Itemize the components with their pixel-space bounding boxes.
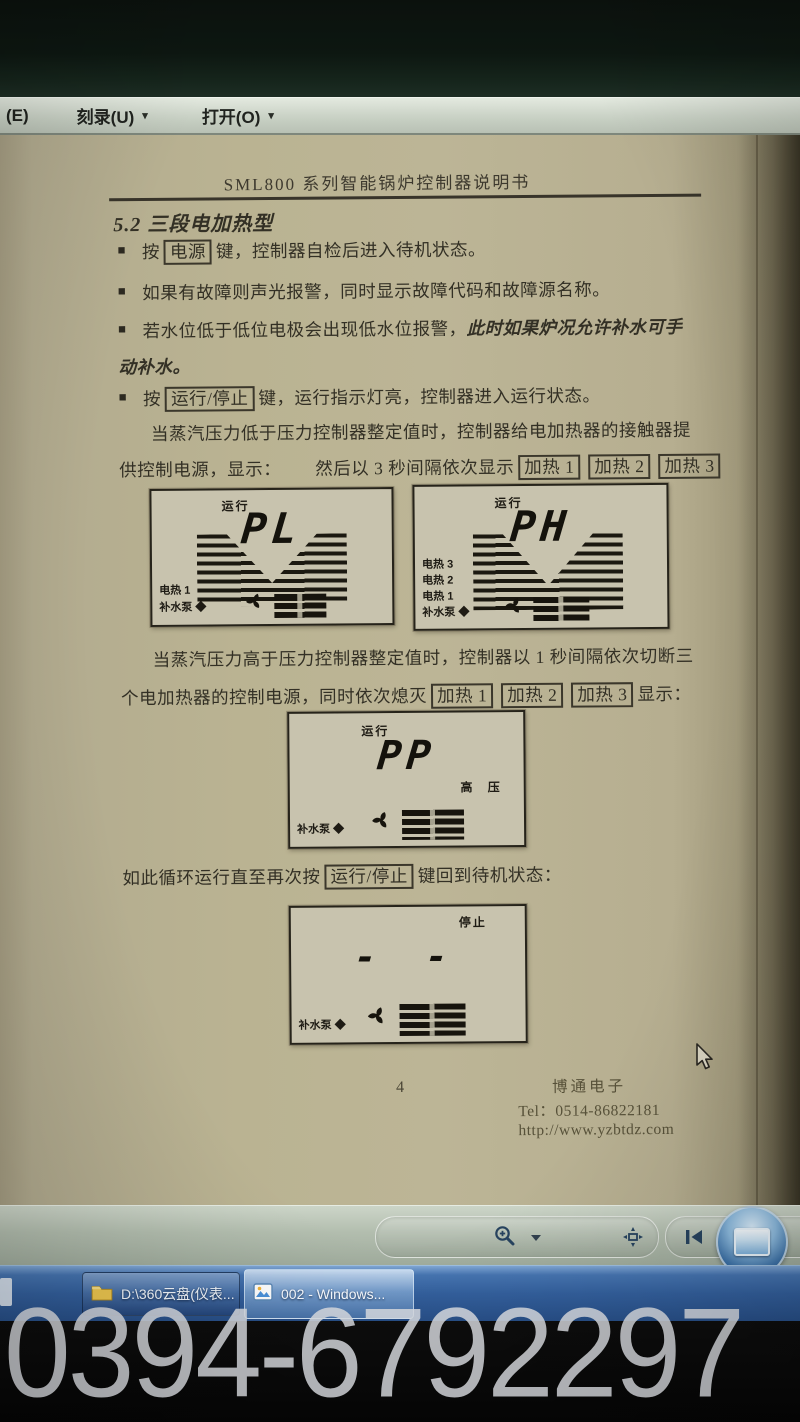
- run-stop-key-box: 运行/停止: [165, 386, 255, 412]
- fan-icon: [242, 589, 266, 618]
- doc-header-title: SML800 系列智能锅炉控制器说明书: [0, 166, 757, 197]
- lcd-side-labels: 补水泵 ◆: [299, 1018, 346, 1036]
- lcd-side-labels: 补水泵 ◆: [297, 822, 344, 840]
- bullet-4-text: 按运行/停止键，运行指示灯亮，控制器进入运行状态。: [143, 382, 601, 412]
- lcd-value: PL: [149, 503, 394, 554]
- menu-item-open-label: 打开(O): [202, 103, 261, 128]
- bullet-3-line-1: ■ 若水位低于低位电极会出现低水位报警，此时如果炉况允许补水可手: [118, 314, 683, 343]
- heater-bars-icon: [274, 594, 326, 618]
- para-high-line-2: 个电加热器的控制电源，同时依次熄灭加热 1加热 2加热 3显示：: [121, 681, 692, 711]
- menu-item-burn[interactable]: 刻录(U) ▾: [67, 103, 158, 128]
- footer-company: 博通电子: [552, 1074, 626, 1097]
- previous-button[interactable]: [682, 1225, 706, 1254]
- fan-icon: [368, 807, 394, 838]
- bullet-marker: ■: [118, 280, 127, 305]
- fan-icon: [501, 593, 526, 623]
- bullet-2: ■ 如果有故障则声光报警，同时显示故障代码和故障源名称。: [118, 276, 611, 305]
- heater-bars-icon: [399, 1003, 465, 1036]
- loop-line: 如此循环运行直至再次按运行/停止键回到待机状态：: [122, 862, 562, 891]
- viewer-toolbar: [0, 1205, 800, 1266]
- heat-2-key-box: 加热 2: [588, 454, 650, 479]
- lcd-display-pl: 运行 PL 电热 1 补水泵 ◆: [149, 487, 394, 627]
- bullet-4: ■ 按运行/停止键，运行指示灯亮，控制器进入运行状态。: [119, 382, 601, 412]
- menu-item-open[interactable]: 打开(O) ▾: [192, 103, 284, 128]
- lcd-value: PP: [287, 732, 525, 780]
- lcd-value: PH: [412, 501, 669, 552]
- heater-bars-icon: [402, 810, 464, 840]
- footer-telephone: Tel：0514-86822181: [518, 1098, 660, 1121]
- lcd-display-stop: 停止 - - 补水泵 ◆: [289, 904, 528, 1045]
- lcd-side-labels: 电热 1 补水泵 ◆: [159, 582, 206, 618]
- high-pressure-label: 高 压: [460, 778, 505, 795]
- heat-1-key-box: 加热 1: [431, 683, 493, 708]
- monitor-top-dark-area: [0, 0, 800, 97]
- document-viewer: SML800 系列智能锅炉控制器说明书 5.2 三段电加热型 ■ 按电源键，控制…: [0, 135, 800, 1205]
- screen-photo: (E) 刻录(U) ▾ 打开(O) ▾ SML800 系列智能锅炉控制器说明书 …: [0, 0, 800, 1422]
- bullet-3-text: 若水位低于低位电极会出现低水位报警，此时如果炉况允许补水可手: [142, 314, 682, 343]
- lcd-value: - -: [289, 936, 527, 979]
- zoom-dropdown-caret-icon[interactable]: [531, 1235, 541, 1241]
- lcd-side-labels: 电热 3 电热 2 电热 1 补水泵 ◆: [422, 558, 470, 622]
- document-page: SML800 系列智能锅炉控制器说明书 5.2 三段电加热型 ■ 按电源键，控制…: [0, 135, 800, 1205]
- menu-bar: (E) 刻录(U) ▾ 打开(O) ▾: [0, 97, 800, 135]
- para-low-line-1: 当蒸汽压力低于压力控制器整定值时，控制器给电加热器的接触器提: [151, 417, 691, 446]
- actual-size-icon[interactable]: [622, 1226, 644, 1253]
- page-number: 4: [396, 1079, 405, 1097]
- run-stop-key-box: 运行/停止: [324, 864, 414, 890]
- bullet-2-text: 如果有故障则声光报警，同时显示故障代码和故障源名称。: [142, 276, 610, 305]
- footer-url: http://www.yzbtdz.com: [518, 1121, 674, 1140]
- para-low-line-2: 供控制电源，显示：然后以 3 秒间隔依次显示加热 1加热 2加热 3: [119, 452, 725, 483]
- fan-icon: [363, 1002, 390, 1034]
- bullet-marker: ■: [119, 386, 128, 412]
- lcd-status-label: 停止: [459, 913, 487, 930]
- bullet-1: ■ 按电源键，控制器自检后进入待机状态。: [117, 236, 486, 265]
- power-key-box: 电源: [164, 239, 212, 264]
- bullet-1-text: 按电源键，控制器自检后进入待机状态。: [142, 236, 486, 265]
- lcd-display-ph: 运行 PH 电热 3 电热 2 电热 1 补水泵 ◆: [412, 483, 669, 631]
- bullet-3-line-2: 动补水。: [118, 354, 190, 380]
- heat-3-key-box: 加热 3: [658, 453, 720, 478]
- lcd-display-pp: 运行 PP 高 压 补水泵 ◆: [287, 710, 526, 849]
- menu-item-e-label: (E): [6, 106, 29, 126]
- watermark-phone-number: 0394-6792297: [4, 1280, 742, 1422]
- section-heading: 5.2 三段电加热型: [113, 207, 273, 237]
- menu-item-burn-label: 刻录(U): [77, 103, 135, 128]
- bullet-marker: ■: [118, 318, 127, 343]
- mouse-cursor-icon: [694, 1043, 714, 1076]
- heat-1-key-box: 加热 1: [518, 455, 580, 480]
- menu-item-e[interactable]: (E): [0, 106, 39, 126]
- para-high-line-1: 当蒸汽压力高于压力控制器整定值时，控制器以 1 秒间隔依次切断三: [153, 643, 694, 672]
- chevron-down-icon: ▾: [142, 109, 148, 122]
- chevron-down-icon: ▾: [268, 109, 274, 122]
- slideshow-screen-icon: [734, 1228, 770, 1256]
- heat-3-key-box: 加热 3: [571, 682, 633, 707]
- heat-2-key-box: 加热 2: [501, 683, 563, 708]
- zoom-magnifier-icon[interactable]: [492, 1223, 518, 1254]
- bullet-marker: ■: [117, 239, 126, 265]
- heater-bars-icon: [533, 597, 589, 623]
